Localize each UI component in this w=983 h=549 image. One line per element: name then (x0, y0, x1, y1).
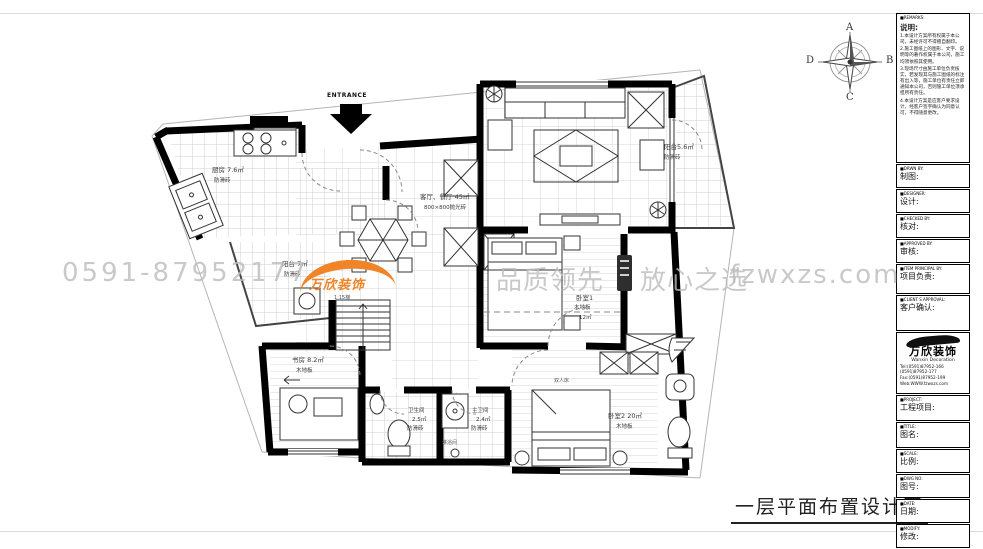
compass-letter-left: D (806, 55, 814, 66)
remarks-label-en: ■REMARKS: (900, 16, 966, 21)
watermark-logo: 万欣装饰 (299, 256, 395, 292)
watermark-logo-text: 万欣装饰 (309, 274, 365, 293)
remark-note: 2.施工图纸上的图形、文字、说明等的著作权属于本公司，施工均须依照其使用。 (900, 47, 966, 66)
watermark-slogan-1: 品质领先 (496, 260, 604, 297)
field-project: ■PROJECT: 工程项目: (896, 395, 970, 421)
remarks-notes: 1.本设计方案所有权属于本公司，未经许可不得擅自翻印。 2.施工图纸上的图形、文… (900, 34, 966, 117)
watermark-site: fzwxzs.com (730, 260, 900, 290)
field-date: ■DATE: 日期: (896, 499, 970, 523)
bedroom1-area-label: 12㎡ (579, 315, 592, 321)
stairs-label: 1:15梯 (334, 296, 350, 302)
field-title: ■TITLE: 图名: (896, 422, 970, 448)
remark-note: 3.现场尺寸由施工单位负责核实，若发现其与施工图纸的标注有出入等，施工单位有责任… (900, 67, 966, 98)
remarks-label-cn: 说明: (900, 22, 966, 33)
field-modify: ■MODIFY: 修改: (896, 524, 970, 548)
company-contact: Tel:(0591)87952-166 (0591)87952-177 Fax:… (900, 364, 948, 387)
floor-drain (451, 449, 459, 457)
compass-letter-top: A (846, 22, 853, 33)
title-block: ■REMARKS: 说明: 1.本设计方案所有权属于本公司，未经许可不得擅自翻印… (896, 13, 970, 531)
company-block: 万欣装饰 Wanxin Decoration Tel:(0591)87952-1… (896, 332, 970, 394)
field-client-approval: ■CLIENT S APPROVAL: 客户确认: (896, 295, 970, 331)
bath-label: 卫生间 (408, 408, 425, 414)
sink-bath1 (370, 394, 384, 414)
company-fax: Fax:(0591)87952-199 (900, 375, 948, 381)
entrance-label: ENTRANCE (327, 93, 367, 100)
study-floor-label: 木地板 (296, 368, 313, 374)
compass-letter-right: B (886, 55, 893, 66)
compass-letter-bottom: C (846, 92, 854, 103)
field-approved-by: ■APPROVED BY: 审核: (896, 239, 970, 263)
wardrobe-bedroom2-a (600, 352, 628, 374)
master-bath-area-label: 2.4㎡ (476, 417, 490, 423)
cabinet-hall (444, 228, 478, 266)
toilet-master (668, 417, 690, 447)
cabinet-entry (444, 160, 478, 196)
field-scale: ■SCALE: 比例: (896, 449, 970, 473)
bedroom1-floor-label: 木地板 (574, 305, 591, 311)
master-bath-floor-label: 防滑砖 (471, 426, 488, 432)
company-web: Web:WWW.fzwxzs.com (900, 381, 948, 387)
field-item-principal: ■ITEM PRINCIPAL BY: 项目负责: (896, 264, 970, 294)
field-checked-by: ■CHECKED BY: 核对: (896, 214, 970, 238)
study-label: 书房 8.2㎡ (292, 357, 324, 364)
bedroom2-floor-label: 木地板 (616, 424, 633, 430)
field-dwg-no: ■DWG NO: 图号: (896, 474, 970, 498)
balcony-right-floor-label: 防滑砖 (664, 155, 681, 161)
master-bath-label: 主卫间 (472, 408, 489, 414)
remark-note: 1.本设计方案所有权属于本公司，未经许可不得擅自翻印。 (900, 34, 966, 46)
watermark-phone: 0591-87952177 (62, 258, 309, 288)
bedroom2-label: 卧室2 20㎡ (608, 413, 642, 420)
toilet-bath1 (388, 420, 410, 448)
kitchen-label: 厨房 7.6㎡ (212, 167, 244, 174)
entrance-arrow-icon (330, 104, 372, 134)
compass-icon (818, 32, 882, 92)
company-name-en: Wanxin Decoration (911, 358, 955, 363)
balcony-right-label: 阳台5.6㎡ (664, 144, 694, 151)
double-bed-label: 双人床 (554, 379, 569, 385)
living-label: 客厅、餐厅 45㎡ (420, 194, 469, 201)
wardrobe-bedroom2-b (630, 352, 658, 374)
shower-label: 淋浴间 (442, 441, 457, 447)
kitchen-stove (234, 130, 296, 156)
watermark-logo-block-icon (617, 255, 632, 291)
bath-floor-label: 防滑砖 (407, 426, 424, 432)
field-designer: ■DESIGNER: 设计: (896, 189, 970, 213)
remarks-section: ■REMARKS: 说明: 1.本设计方案所有权属于本公司，未经许可不得擅自翻印… (896, 13, 970, 163)
living-floor-label: 800×800抛光砖 (424, 205, 466, 211)
bath-area-label: 2.5㎡ (412, 417, 426, 423)
cabinet-living (628, 92, 664, 128)
remark-note: 4.本设计方案是应客户要求设计，经客户签字确认为同意认可，不得随意更改。 (900, 99, 966, 118)
company-name-cn: 万欣装饰 (909, 346, 957, 358)
field-drawn-by: ■DRWN BY: 制图: (896, 164, 970, 188)
bed-2 (515, 390, 627, 466)
kitchen-floor-label: 防滑砖 (214, 178, 231, 184)
tv-cabinet (540, 214, 620, 225)
